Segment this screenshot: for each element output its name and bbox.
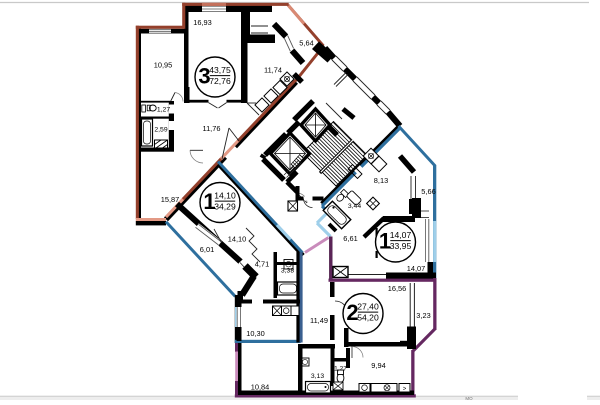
svg-text:3,38: 3,38: [281, 268, 294, 275]
svg-text:10,84: 10,84: [251, 383, 270, 392]
svg-text:14,10: 14,10: [228, 235, 247, 244]
svg-text:54,20: 54,20: [357, 313, 379, 323]
svg-text:6,01: 6,01: [200, 245, 214, 254]
svg-text:16,93: 16,93: [193, 18, 212, 27]
svg-text:9,94: 9,94: [371, 361, 385, 370]
svg-text:MO: MO: [465, 396, 473, 400]
svg-text:14,10: 14,10: [214, 191, 236, 201]
svg-text:6,61: 6,61: [343, 234, 357, 243]
svg-text:10,30: 10,30: [246, 329, 265, 338]
svg-text:1,27: 1,27: [157, 107, 170, 114]
svg-text:3,23: 3,23: [416, 311, 430, 320]
svg-text:16,56: 16,56: [388, 284, 407, 293]
svg-text:11,49: 11,49: [310, 316, 328, 325]
svg-text:>: >: [403, 387, 407, 393]
svg-text:3,44: 3,44: [348, 203, 361, 210]
svg-text:8,13: 8,13: [374, 176, 388, 185]
svg-text:2,59: 2,59: [154, 127, 167, 134]
svg-text:72,76: 72,76: [209, 76, 231, 86]
svg-text:43,75: 43,75: [209, 65, 231, 75]
svg-text:33,95: 33,95: [390, 241, 412, 251]
svg-text:14,07: 14,07: [407, 264, 426, 273]
svg-text:4,71: 4,71: [255, 260, 269, 269]
svg-text:11,74: 11,74: [264, 66, 282, 75]
svg-text:5,64: 5,64: [299, 39, 313, 48]
svg-text:11,76: 11,76: [203, 124, 221, 133]
svg-text:1,27: 1,27: [334, 366, 347, 373]
svg-text:34,29: 34,29: [214, 202, 236, 212]
svg-text:14,07: 14,07: [390, 230, 412, 240]
svg-text:15,87: 15,87: [161, 195, 180, 204]
svg-text:5,66: 5,66: [421, 187, 435, 196]
svg-text:27,40: 27,40: [357, 302, 379, 312]
svg-text:10,95: 10,95: [154, 61, 173, 70]
svg-text:3,13: 3,13: [311, 373, 324, 380]
